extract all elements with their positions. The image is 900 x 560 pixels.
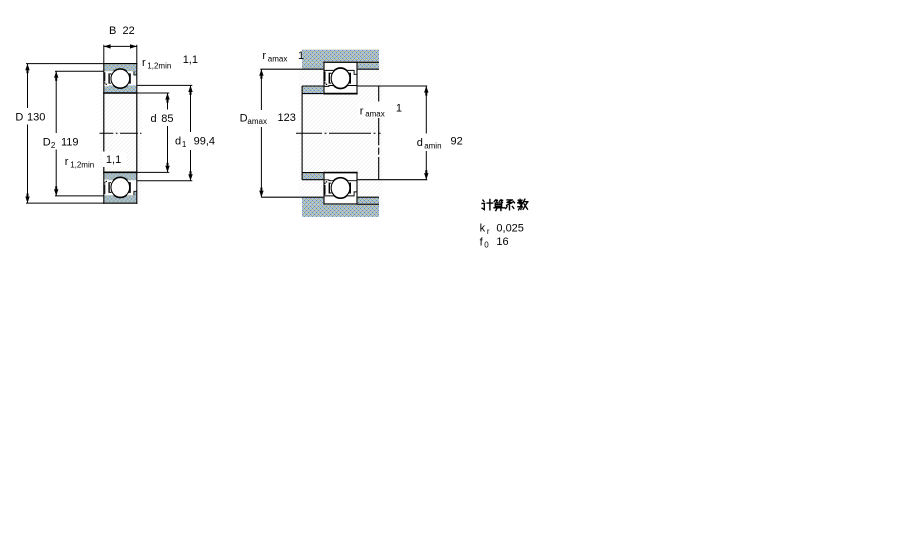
svg-text:D: D: [240, 112, 248, 124]
svg-text:92: 92: [451, 136, 463, 148]
svg-text:amin: amin: [424, 142, 441, 151]
svg-text:130: 130: [27, 111, 45, 123]
svg-text:d: d: [175, 135, 181, 147]
svg-text:D: D: [15, 111, 23, 123]
svg-text:r: r: [262, 50, 266, 62]
svg-text:r: r: [142, 57, 146, 69]
svg-text:D: D: [43, 137, 51, 149]
svg-text:1,1: 1,1: [183, 54, 198, 66]
svg-text:99,4: 99,4: [194, 135, 215, 147]
svg-text:r: r: [360, 106, 364, 118]
svg-text:1,2min: 1,2min: [70, 160, 94, 169]
svg-text:0: 0: [484, 240, 489, 249]
svg-text:2: 2: [51, 141, 56, 150]
svg-text:r: r: [487, 227, 490, 236]
svg-text:d: d: [151, 113, 157, 125]
svg-text:22: 22: [123, 25, 135, 37]
svg-text:d: d: [417, 137, 423, 149]
svg-text:1: 1: [396, 102, 402, 114]
svg-text:123: 123: [278, 112, 296, 124]
svg-text:1: 1: [182, 140, 187, 149]
svg-text:1,1: 1,1: [106, 154, 121, 166]
svg-text:1,2min: 1,2min: [147, 61, 171, 70]
svg-text:amax: amax: [268, 54, 288, 63]
svg-text:0,025: 0,025: [496, 223, 524, 235]
svg-text:amax: amax: [365, 109, 385, 118]
svg-text:16: 16: [496, 236, 508, 248]
svg-text:B: B: [109, 25, 116, 37]
svg-text:k: k: [480, 223, 486, 235]
svg-text:r: r: [65, 156, 69, 168]
svg-text:amax: amax: [247, 117, 267, 126]
svg-text:1: 1: [298, 50, 304, 62]
svg-text:119: 119: [61, 137, 79, 149]
svg-text:85: 85: [161, 113, 173, 125]
